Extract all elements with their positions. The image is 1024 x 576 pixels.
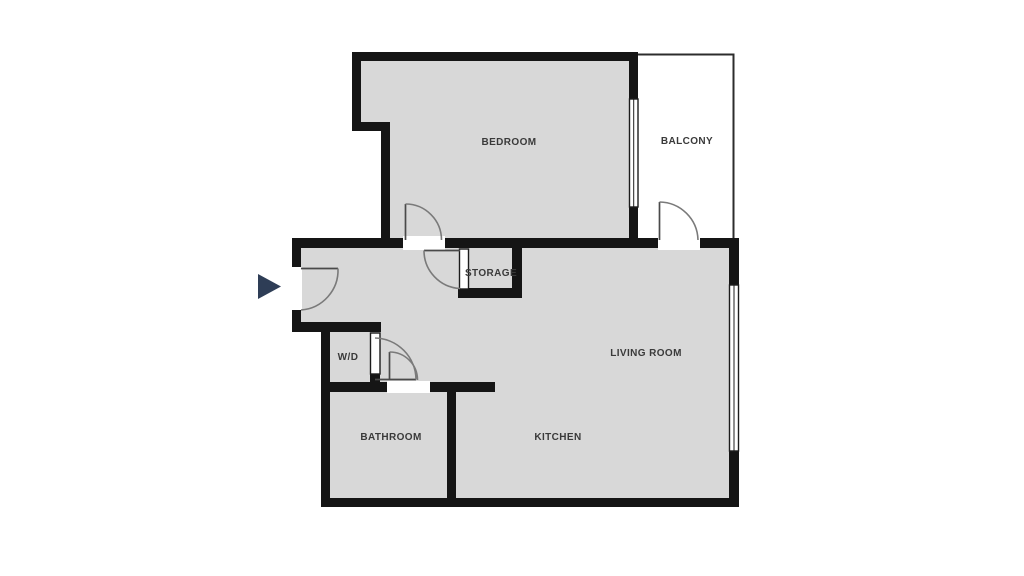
wall-bathroom-kitchen-divider [447, 388, 456, 498]
wall-bathroom-top-west [330, 382, 387, 392]
bedroom-label: BEDROOM [481, 137, 536, 148]
bathroom-label: BATHROOM [360, 432, 421, 443]
balcony-label: BALCONY [661, 136, 713, 147]
floorplan-drawing: BEDROOM BALCONY STORAGE LIVING ROOM W/D … [0, 0, 1024, 576]
wall-right-upper [729, 242, 739, 286]
wall-bedroom-left-upper [352, 52, 361, 131]
living-room-label: LIVING ROOM [610, 348, 682, 359]
wall-right-lower [729, 450, 739, 507]
balcony-door-opening [658, 236, 700, 250]
wd-label: W/D [338, 352, 359, 363]
wall-hall-south [292, 322, 381, 332]
storage-label: STORAGE [465, 268, 517, 279]
wall-bedroom-right-upper [629, 52, 638, 100]
wall-bedroom-left-lower [381, 122, 390, 248]
bedroom-door-opening [403, 236, 445, 250]
kitchen-label: KITCHEN [534, 432, 581, 443]
bathroom-door-opening [387, 381, 430, 393]
floorplan-page: BEDROOM BALCONY STORAGE LIVING ROOM W/D … [0, 0, 1024, 576]
wall-bedroom-top [352, 52, 638, 61]
wall-mid-band-center [445, 238, 658, 248]
bedroom-floor [361, 56, 634, 244]
wall-mid-band-west [292, 238, 403, 248]
wall-entry-upper-stub [292, 238, 301, 267]
wall-bathroom-top-east [430, 382, 495, 392]
wall-bottom-exterior [321, 498, 739, 507]
balcony-floor [638, 54, 734, 244]
wd-door-strip [371, 333, 381, 374]
wall-west-exterior [321, 322, 330, 507]
entry-door-opening [291, 267, 302, 310]
